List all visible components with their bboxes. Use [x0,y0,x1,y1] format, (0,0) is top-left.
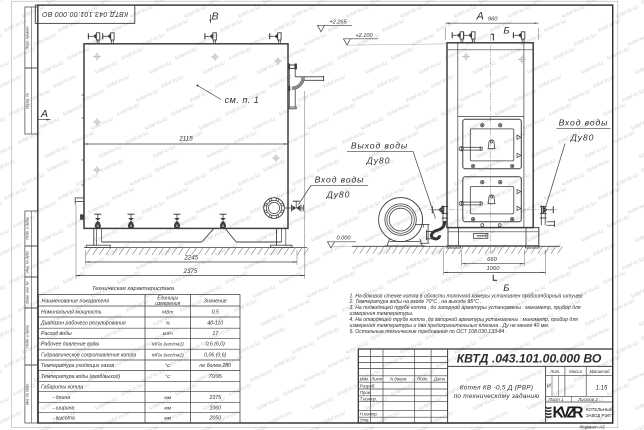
svg-text:Б: Б [503,26,509,37]
svg-text:мм: мм [164,417,171,422]
svg-text:- длина: - длина [53,395,71,401]
svg-text:КОТЕЛЬНЫЙ: КОТЕЛЬНЫЙ [586,407,613,412]
svg-text:Рабочее давление воды: Рабочее давление воды [41,342,99,348]
svg-text:мм: мм [164,407,171,412]
svg-text:Лист 1: Лист 1 [548,397,565,402]
svg-text:Расход воды: Расход воды [41,331,72,337]
svg-text:по техническому заданию: по техническому заданию [454,392,540,400]
svg-text:960: 960 [488,17,498,23]
svg-text:Перв. примен.: Перв. примен. [26,26,30,50]
svg-text:°С: °С [165,363,171,369]
svg-text:Дата: Дата [433,377,446,382]
svg-text:м3/ч: м3/ч [163,331,173,337]
svg-text:2115: 2115 [178,136,193,143]
svg-text:Подп. и дата: Подп. и дата [26,217,30,240]
svg-text:Значение: Значение [204,298,227,304]
svg-text:%: % [166,321,171,327]
svg-text:см. п. 1: см. п. 1 [225,95,260,105]
svg-text:МПа (кгс/см2): МПа (кгс/см2) [152,342,184,348]
svg-text:Лит.: Лит. [549,369,560,374]
svg-text:Диапазон рабочего регулировани: Диапазон рабочего регулирования [40,321,126,327]
svg-text:Т.контр.: Т.контр. [360,396,377,401]
svg-text:Лист: Лист [370,377,382,382]
svg-text:1060: 1060 [209,406,221,412]
svg-text:+2.265: +2.265 [329,20,347,26]
svg-text:измерения: измерения [155,301,180,307]
svg-text:Разраб.: Разраб. [360,384,376,389]
svg-text:0,6 (6,0): 0,6 (6,0) [206,342,226,348]
svg-text:1:15: 1:15 [596,386,608,392]
svg-text:Ду80: Ду80 [570,133,595,143]
svg-text:Н.контр.: Н.контр. [360,412,378,417]
svg-text:Ду80: Ду80 [326,190,351,200]
svg-text:Пров.: Пров. [360,390,371,395]
svg-text:Габариты котла: Габариты котла [41,384,83,390]
svg-text:Подп. и дата: Подп. и дата [26,325,30,348]
svg-text:5. Остальные технические треб: 5. Остальные технические требования по О… [350,329,508,335]
svg-text:Инв. № дубл.: Инв. № дубл. [26,250,30,272]
svg-text:- ширина: - ширина [53,406,75,412]
svg-text:2375: 2375 [208,395,221,401]
svg-text:1060: 1060 [487,266,501,272]
svg-text:- высота: - высота [53,416,75,422]
svg-text:Котел КВ -0,5 Д (РВР): Котел КВ -0,5 Д (РВР) [460,384,534,391]
svg-text:В: В [211,10,218,22]
svg-text:Изм.: Изм. [360,377,369,382]
svg-text:Техническая характеристика: Техническая характеристика [92,286,175,292]
svg-text:КВТД .043.101.00.000 ВО: КВТД .043.101.00.000 ВО [457,352,602,366]
svg-text:+2.100: +2.100 [355,33,373,39]
svg-text:Номинальная мощность: Номинальная мощность [41,309,102,315]
svg-text:И: И [547,384,551,390]
svg-text:660: 660 [487,257,497,263]
svg-text:Температура уходящих газов: Температура уходящих газов [41,363,114,369]
svg-text:Инв. № подл.: Инв. № подл. [26,383,30,405]
svg-text:МВт: МВт [162,309,173,315]
svg-text:3. На подводящей трубе котла: 3. На подводящей трубе котла , до запорн… [350,304,581,311]
svg-text:Температура воды (вход/выход): Температура воды (вход/выход) [41,374,120,380]
svg-text:2245: 2245 [183,255,198,262]
svg-text:Выход воды: Выход воды [351,141,408,151]
svg-text:КВТД.043.101.00.000 ВО: КВТД.043.101.00.000 ВО [42,10,129,17]
svg-text:2050: 2050 [208,416,221,422]
svg-text:не более 280: не более 280 [199,363,231,369]
svg-text:Вход воды: Вход воды [315,175,365,185]
svg-text:Масса: Масса [569,369,582,374]
svg-text:Гидравлическое сопротивление к: Гидравлическое сопротивление котла [41,353,136,359]
svg-text:ЗАВОД РЭП: ЗАВОД РЭП [586,413,611,418]
svg-text:°С: °С [165,374,171,380]
svg-text:40-110: 40-110 [207,321,223,327]
svg-text:Масштаб: Масштаб [589,369,610,374]
svg-text:70/95: 70/95 [209,374,222,380]
svg-text:0.000: 0.000 [337,236,352,242]
svg-text:Ду80: Ду80 [366,156,391,166]
svg-text:Подп.: Подп. [417,377,428,382]
svg-text:Утв.: Утв. [360,418,370,423]
svg-text:Справ. №: Справ. № [26,93,30,109]
svg-text:4. На отводящей трубе котла ,: 4. На отводящей трубе котла ,до запорной… [350,316,579,323]
svg-text:2375: 2375 [183,268,198,275]
svg-text:Формат А3: Формат А3 [579,425,605,430]
svg-text:Наименование показателя: Наименование показателя [42,298,110,304]
svg-text:МПа (кгс/см2): МПа (кгс/см2) [152,353,184,359]
svg-text:0,06 (0,6): 0,06 (0,6) [204,353,226,359]
svg-text:Вход воды: Вход воды [559,118,609,128]
svg-text:А: А [476,11,484,23]
svg-text:N докум.: N докум. [390,377,407,382]
svg-text:KVZR: KVZR [553,405,584,422]
svg-text:мм: мм [164,396,171,401]
svg-text:Взам. инв. №: Взам. инв. № [26,281,30,303]
svg-text:А: А [40,108,48,120]
svg-text:0,5: 0,5 [212,309,219,315]
svg-text:Листов 2: Листов 2 [577,397,598,402]
